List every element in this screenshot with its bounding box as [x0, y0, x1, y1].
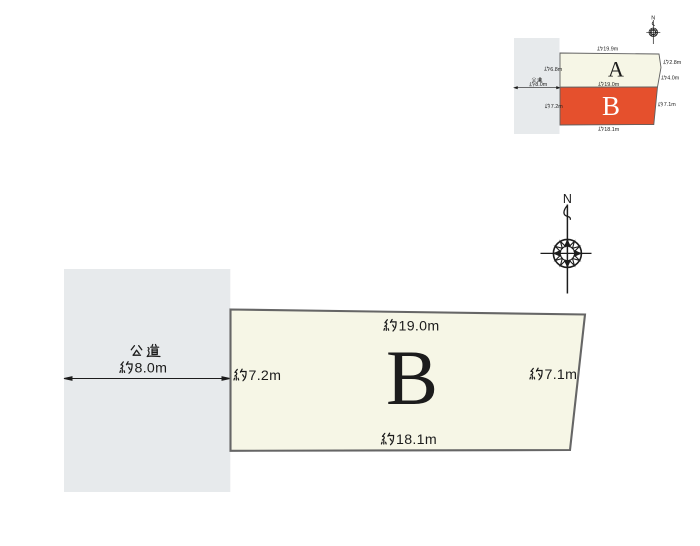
- svg-text:B: B: [386, 334, 438, 421]
- svg-text:18.1m: 18.1m: [604, 127, 619, 133]
- svg-text:8.0m: 8.0m: [135, 361, 168, 377]
- svg-text:A: A: [608, 57, 624, 82]
- svg-text:19.0m: 19.0m: [399, 318, 440, 334]
- svg-text:19.0m: 19.0m: [604, 82, 619, 88]
- svg-text:7.1m: 7.1m: [545, 367, 578, 383]
- svg-text:B: B: [602, 91, 620, 121]
- svg-text:7.2m: 7.2m: [551, 104, 563, 110]
- svg-text:7.2m: 7.2m: [249, 368, 282, 384]
- svg-text:6.8m: 6.8m: [550, 67, 562, 73]
- svg-text:18.1m: 18.1m: [396, 432, 437, 448]
- svg-text:N: N: [563, 192, 572, 206]
- svg-text:19.9m: 19.9m: [603, 47, 618, 53]
- svg-text:4.0m: 4.0m: [667, 76, 679, 82]
- svg-text:8.0m: 8.0m: [535, 82, 547, 88]
- svg-text:2.8m: 2.8m: [669, 60, 681, 66]
- svg-text:7.1m: 7.1m: [664, 102, 676, 108]
